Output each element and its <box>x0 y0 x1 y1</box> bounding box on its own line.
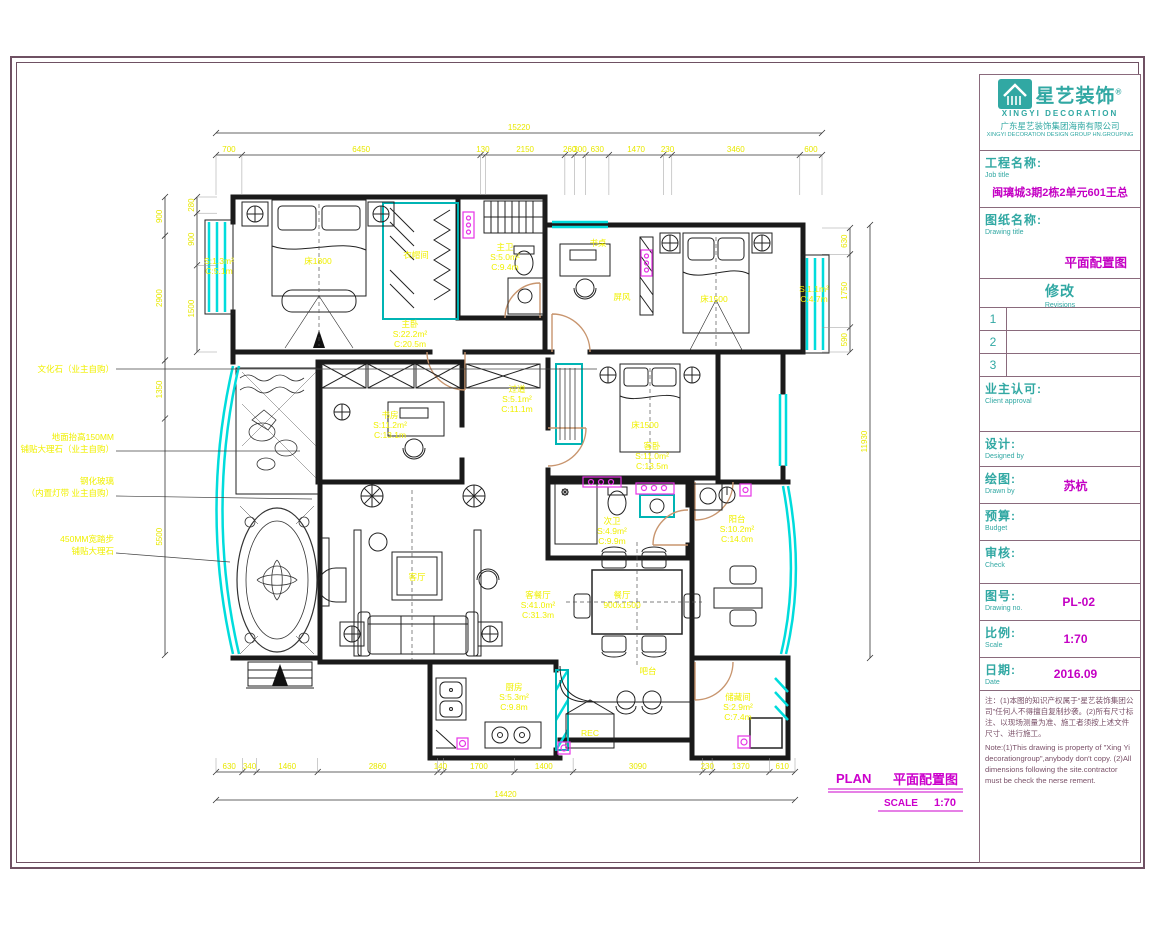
dim-right-inner-value: 630 <box>840 234 849 248</box>
field-drawn-by: 绘图: Drawn by 苏杭 <box>980 467 1140 504</box>
floor-plan: 文化石（业主自购）地面抬高150MM铺贴大理石（业主自购）钢化玻璃（内置灯带 业… <box>15 65 975 870</box>
dim-left-outer-value: 2900 <box>155 289 164 307</box>
dim-top-segments-value: 3460 <box>727 145 745 154</box>
dim-bottom-segments-value: 1370 <box>732 762 750 771</box>
date-label-en: Date <box>985 679 1016 686</box>
dim-bottom-segments-value: 610 <box>776 762 790 771</box>
dim-top-segments-value: 630 <box>591 145 605 154</box>
dim-top-overall: 15220 <box>213 123 825 136</box>
dim-right-inner-value: 1750 <box>840 281 849 299</box>
drawn-label-en: Drawn by <box>985 488 1016 495</box>
field-drawing-no: 图号: Drawing no. PL-02 <box>980 584 1140 621</box>
dim-top-overall-value: 15220 <box>508 123 531 132</box>
revision-row: 2 <box>980 331 1140 354</box>
drawing-label-en: Drawing title <box>985 229 1135 236</box>
furniture-label-bed-1500-study: 床1500 <box>700 294 728 304</box>
field-revisions: 修改 Revisions <box>980 279 1140 308</box>
dim-bottom-segments-value: 630 <box>223 762 237 771</box>
scale-label-en: Scale <box>985 642 1016 649</box>
revision-number-2: 2 <box>980 331 1007 353</box>
annotation-tempered-glass-leader <box>116 496 312 499</box>
plan-title-underline <box>828 789 963 792</box>
room-label-storage: 储藏间S:2.9m²C:7.4m <box>723 692 753 722</box>
dim-left-inner-value: 1500 <box>187 299 196 317</box>
room-label-master-bedroom: 主卧S:22.2m²C:20.5m <box>393 319 428 349</box>
drawn-label: 绘图: <box>985 470 1016 487</box>
date-label: 日期: <box>985 661 1016 678</box>
check-label: 审核: <box>985 544 1135 561</box>
field-drawing-title: 图纸名称: Drawing title 平面配置图 <box>980 208 1140 279</box>
door-second-bath <box>653 510 688 545</box>
drawing-no-label: 图号: <box>985 587 1022 604</box>
dim-bottom-overall: 14420 <box>213 790 798 803</box>
feature-wall-decor <box>237 372 317 654</box>
client-label: 业主认可: <box>985 380 1135 397</box>
dim-bottom-segments-value: 340 <box>243 762 257 771</box>
revision-number-1: 1 <box>980 308 1007 330</box>
door-study <box>552 314 590 352</box>
dim-top-segments-value: 1470 <box>627 145 645 154</box>
dim-top-segments-value: 6450 <box>352 145 370 154</box>
dim-top-segments: 7006450130215026030063014702303460600 <box>213 145 825 195</box>
door-guest-bedroom <box>548 428 586 466</box>
dim-right-overall-value: 11930 <box>860 430 869 452</box>
furniture-label-desk: 书桌 <box>589 238 607 248</box>
furniture-label-fridge: REC <box>581 728 599 738</box>
dim-top-segments-value: 600 <box>804 145 818 154</box>
annotation-step: 450MM宽踏步铺贴大理石 <box>60 534 114 556</box>
furniture-label-living-table: 客厅 <box>408 572 426 582</box>
door-master-bedroom <box>427 352 465 390</box>
client-label-en: Client approval <box>985 398 1135 405</box>
revision-number-3: 3 <box>980 354 1007 376</box>
note-english: Note:(1)This drawing is property of "Xin… <box>985 742 1135 786</box>
dim-bottom-segments: 630340146028601401700140030902301370610 <box>213 758 798 775</box>
annotation-step-leader <box>116 553 230 562</box>
windows <box>209 222 823 750</box>
dim-top-segments-value: 230 <box>661 145 675 154</box>
company-name-en: XINGYI DECORATION DESIGN GROUP HN.GROUPI… <box>986 132 1134 138</box>
dim-right-overall: 11930 <box>860 222 873 661</box>
room-label-guest-bedroom: 客卧S:11.0m²C:13.5m <box>635 441 669 471</box>
revision-row: 1 <box>980 308 1140 331</box>
furniture-label-bed-1800: 床1800 <box>304 256 332 266</box>
date-value: 2016.09 <box>1016 661 1135 687</box>
furniture-label-dining-table: 餐厅900x1500 <box>603 590 641 610</box>
dim-left-inner-value: 280 <box>187 198 196 212</box>
plan-scale-label: SCALE <box>884 798 918 809</box>
design-label: 设计: <box>985 435 1135 452</box>
dim-left-inner-value: 900 <box>187 232 196 246</box>
company-name: 广东星艺装饰集团海南有限公司 <box>982 120 1138 132</box>
dim-left-outer-value: 900 <box>155 209 164 223</box>
furniture-label-bed-1500-guest: 床1500 <box>631 420 659 430</box>
annotation-floor-marble: 地面抬高150MM铺贴大理石（业主自购） <box>20 432 114 454</box>
drawing-no-label-en: Drawing no. <box>985 605 1022 612</box>
dim-bottom-segments-value: 1700 <box>470 762 488 771</box>
dim-left-outer-value: 5500 <box>155 527 164 545</box>
budget-label: 预算: <box>985 507 1135 524</box>
drawing-label: 图纸名称: <box>985 211 1135 228</box>
area-label-bay-window-left: S:1.3m²C:5.1m <box>204 256 234 276</box>
dim-bottom-segments-value: 3090 <box>629 762 647 771</box>
plan-scale-value: 1:70 <box>934 797 956 809</box>
dim-bottom-segments-value: 1460 <box>278 762 296 771</box>
note-chinese: 注：(1)本图的知识产权属于“星艺装饰集团公司”任何人不得擅自复制抄袭。(2)所… <box>985 695 1135 739</box>
annotation-tempered-glass: 钢化玻璃（内置灯带 业主自购） <box>27 476 115 498</box>
dim-bottom-overall-value: 14420 <box>494 790 517 799</box>
revision-row: 3 <box>980 354 1140 377</box>
drawn-value: 苏杭 <box>1016 470 1135 500</box>
room-label-closet: 衣帽间 <box>403 250 429 260</box>
dim-bottom-segments-value: 1400 <box>535 762 553 771</box>
dim-bottom-segments-value: 140 <box>434 762 448 771</box>
structure-details <box>205 220 829 656</box>
room-label-balcony: 阳台S:10.2m²C:14.0m <box>720 514 755 544</box>
dim-bottom-segments-value: 2860 <box>369 762 387 771</box>
dim-top-segments-value: 2150 <box>516 145 534 154</box>
room-label-living-dining: 客餐厅S:41.0m²C:31.3m <box>521 590 556 620</box>
plan-title-en: PLAN <box>836 771 871 786</box>
field-date: 日期: Date 2016.09 <box>980 658 1140 691</box>
scale-value: 1:70 <box>1016 624 1135 654</box>
plan-title-block: PLAN 平面配置图 SCALE 1:70 <box>828 771 963 811</box>
field-designed-by: 设计: Designed by <box>980 432 1140 467</box>
plan-title-cn: 平面配置图 <box>893 772 958 787</box>
revisions-label: 修改 <box>985 281 1135 301</box>
scale-label: 比例: <box>985 624 1016 641</box>
dim-bottom-segments-value: 230 <box>701 762 715 771</box>
dim-left-outer: 900290013505500 <box>155 194 168 658</box>
brand-name-en: XINGYI DECORATION <box>982 109 1138 118</box>
dim-left-outer-value: 1350 <box>155 380 164 398</box>
job-label: 工程名称: <box>985 154 1135 171</box>
title-block: 星艺装饰® XINGYI DECORATION 广东星艺装饰集团海南有限公司 X… <box>979 74 1141 863</box>
brand-name: 星艺装饰® <box>1036 81 1123 108</box>
notes: 注：(1)本图的知识产权属于“星艺装饰集团公司”任何人不得擅自复制抄袭。(2)所… <box>980 691 1140 862</box>
furniture-label-bar: 吧台 <box>639 666 656 676</box>
dim-top-segments-value: 700 <box>222 145 236 154</box>
room-label-second-bath: 次卫S:4.9m²C:9.9m <box>597 516 627 546</box>
annotation-culture-stone: 文化石（业主自购） <box>37 364 114 374</box>
dim-top-segments-value: 130 <box>476 145 490 154</box>
area-label-bay-window-right: S:1.1m²C:4.7m <box>799 284 829 304</box>
room-label-study: 书房S:11.2m²C:13.1m <box>373 410 407 440</box>
field-job-title: 工程名称: Job title 闽璃城3期2栋2单元601王总 <box>980 151 1140 208</box>
check-label-en: Check <box>985 562 1135 569</box>
dim-right-inner-value: 590 <box>840 332 849 346</box>
furniture <box>242 200 782 748</box>
job-label-en: Job title <box>985 172 1135 179</box>
dim-top-segments-value: 300 <box>573 145 587 154</box>
drawing-no-value: PL-02 <box>1022 587 1135 617</box>
door-master-bath <box>505 283 540 318</box>
field-check: 审核: Check <box>980 541 1140 584</box>
room-label-kitchen: 厨房S:5.3m²C:9.8m <box>499 682 529 712</box>
design-label-en: Designed by <box>985 453 1135 460</box>
job-value: 闽璃城3期2栋2单元601王总 <box>985 184 1135 200</box>
company-header: 星艺装饰® XINGYI DECORATION 广东星艺装饰集团海南有限公司 X… <box>980 75 1140 151</box>
field-scale: 比例: Scale 1:70 <box>980 621 1140 658</box>
field-budget: 预算: Budget <box>980 504 1140 541</box>
drawing-value: 平面配置图 <box>985 252 1135 271</box>
xingyi-logo-icon <box>998 79 1032 109</box>
furniture-label-screen: 屏风 <box>613 292 631 302</box>
budget-label-en: Budget <box>985 525 1135 532</box>
field-client-approval: 业主认可: Client approval <box>980 377 1140 432</box>
